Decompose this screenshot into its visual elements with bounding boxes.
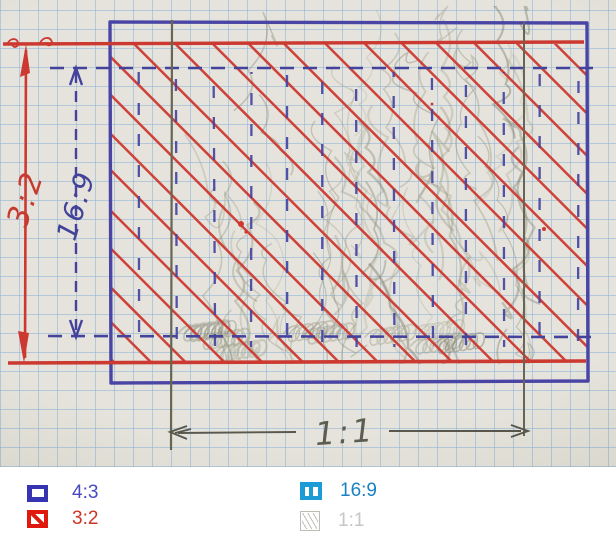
legend-item-1-1[interactable]: 1:1 xyxy=(300,511,364,531)
legend-label-16-9: 16:9 xyxy=(340,481,377,501)
legend-item-16-9[interactable]: 16:9 xyxy=(300,481,377,501)
aspect-ratio-diagram-page: 3:2 16:9 1:1 4:3 3:2 16:9 1:1 xyxy=(0,0,616,544)
dimension-arrow-16-9 xyxy=(70,68,82,337)
aspect-4-3-solid-rect-icon xyxy=(27,485,48,502)
hand-drawing xyxy=(0,0,616,467)
legend-label-3-2: 3:2 xyxy=(72,509,98,529)
dimension-arrow-1-1 xyxy=(170,425,528,439)
legend-item-4-3[interactable]: 4:3 xyxy=(27,483,98,503)
notebook-photo: 3:2 16:9 1:1 xyxy=(0,0,616,468)
aspect-3-2-diagonal-hatch-icon xyxy=(27,510,48,528)
legend-label-1-1: 1:1 xyxy=(338,511,364,531)
aspect-ratio-legend: 4:3 3:2 16:9 1:1 xyxy=(0,467,616,544)
legend-label-4-3: 4:3 xyxy=(72,483,98,503)
red-ink-specks xyxy=(238,103,546,234)
legend-item-3-2[interactable]: 3:2 xyxy=(27,509,98,529)
aspect-16-9-dashed-rect-icon xyxy=(300,482,322,500)
dimension-arrow-3-2 xyxy=(18,44,30,363)
aspect-1-1-pencil-hatch-icon xyxy=(300,511,320,531)
